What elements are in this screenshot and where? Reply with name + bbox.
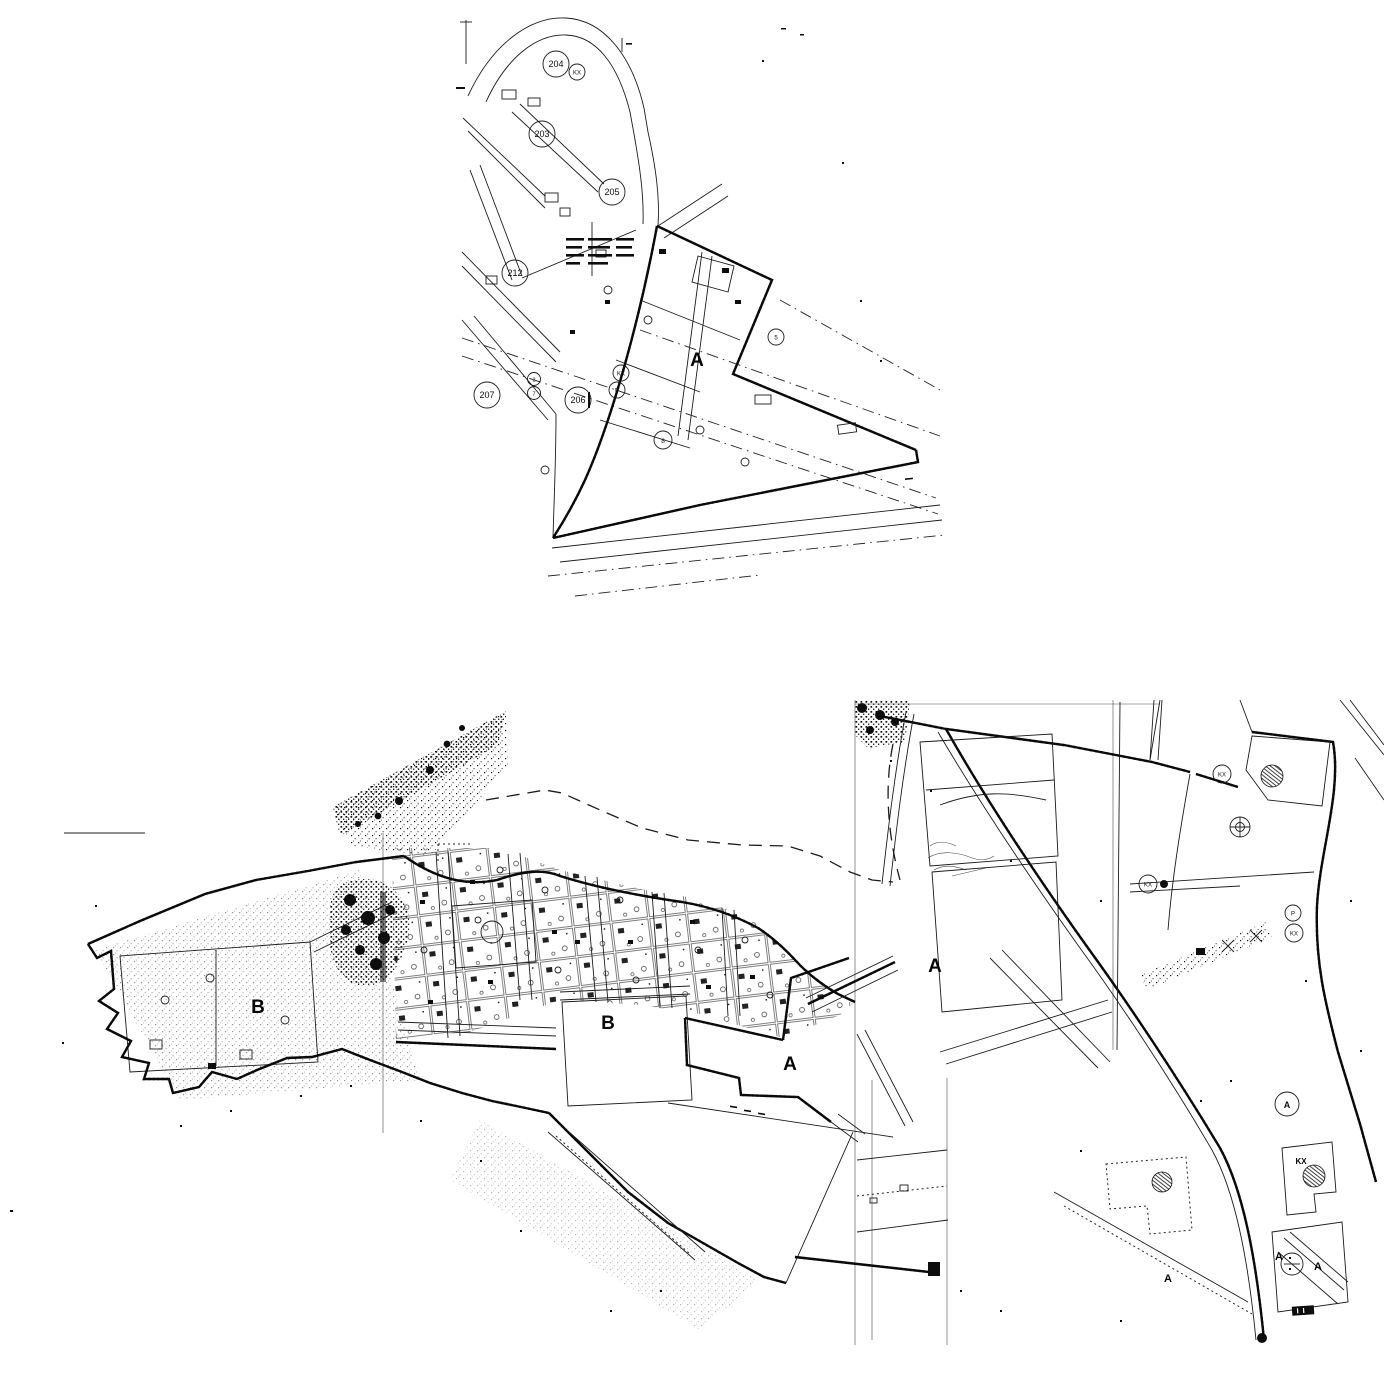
bottom-map-right-sheet: A KX KX P KX A A A A KX [855, 700, 1384, 1343]
well-symbol [1160, 880, 1168, 888]
parcel-number: 7 [532, 392, 535, 398]
parcel-number: 205 [604, 187, 619, 197]
noise-triangle [333, 711, 508, 856]
circled-letter: A [1284, 1100, 1291, 1110]
circled-label: KX [1285, 924, 1303, 942]
parcel-number: 206 [570, 395, 585, 405]
parcel-number-circle: 8 [654, 431, 672, 449]
region-label-a2: A [928, 956, 942, 977]
region-label-b1: B [251, 997, 265, 1018]
circled-letter: P [1291, 912, 1295, 918]
coordinate-table [566, 238, 634, 265]
circled-label: A [1275, 1092, 1299, 1116]
ratio-circle-symbol [1281, 1253, 1303, 1275]
corner-blob [855, 700, 910, 748]
parcel-number-circle: 206 [565, 387, 591, 413]
street-lines [462, 104, 740, 538]
road-boundaries [880, 716, 1376, 1343]
bottom-map-left-sheet: B B A [10, 711, 940, 1330]
parcel-number-circle: 207 [474, 382, 500, 408]
parcel-number: 203 [534, 129, 549, 139]
parcel-number-circle: KX [569, 64, 585, 80]
survey-boundary [553, 226, 918, 538]
small-label-a: A [1164, 1273, 1172, 1285]
building-footprints [486, 90, 857, 434]
dense-parcel-blocks [392, 848, 852, 1040]
small-label-a: A [1275, 1251, 1283, 1263]
circled-letter: KX [1218, 773, 1226, 779]
parcel-number: 2 [532, 378, 535, 384]
handwritten-annotation [928, 842, 994, 876]
black-label-plate [1292, 1305, 1315, 1316]
shaded-road-band [1140, 922, 1272, 990]
parcel-number-circle: 205 [599, 179, 625, 205]
parcel-number-circle: 212 [502, 260, 528, 286]
parcel-number-circle: 5 [768, 329, 784, 345]
top-map-fragment: 204 KX 203 205 212 2 7 207 206 KX P [456, 18, 945, 596]
parcel-number: 212 [507, 268, 522, 278]
circled-letter: KX [1144, 883, 1152, 889]
sheet-margin-marks [456, 20, 804, 89]
circled-letter: KX [1290, 932, 1298, 938]
loop-road [468, 18, 659, 226]
parcel-number-circle: 204 [543, 51, 569, 77]
parcel-number: 207 [479, 390, 494, 400]
parcel-number: 5 [774, 336, 778, 342]
region-label-a1: A [783, 1054, 797, 1075]
scan-specks [890, 760, 1362, 1322]
parcel-number: P [615, 389, 619, 395]
parcel-number: 204 [548, 59, 563, 69]
circled-label: KX [1139, 875, 1157, 893]
parcel-number: 8 [661, 438, 665, 445]
tree-symbol [1152, 765, 1325, 1192]
region-label-b2: B [601, 1013, 615, 1034]
circled-label: P [1285, 905, 1301, 921]
parcel-number: KX [573, 71, 581, 77]
parcel-lines [857, 700, 1384, 1314]
small-label-kx: KX [1295, 1157, 1307, 1166]
parcel-number-circle: 2 [528, 373, 541, 386]
map-scan: 204 KX 203 205 212 2 7 207 206 KX P [0, 0, 1384, 1390]
small-label-a: A [1314, 1261, 1322, 1273]
scan-noise [450, 1120, 760, 1330]
road-centerlines [462, 300, 945, 596]
survey-benchmark-symbol [1230, 817, 1250, 837]
parcel-number: KX [617, 372, 625, 378]
scanned-map-page: 204 KX 203 205 212 2 7 207 206 KX P [0, 0, 1384, 1390]
circled-label: KX [1213, 765, 1231, 783]
zone-label-a: A [690, 350, 704, 371]
